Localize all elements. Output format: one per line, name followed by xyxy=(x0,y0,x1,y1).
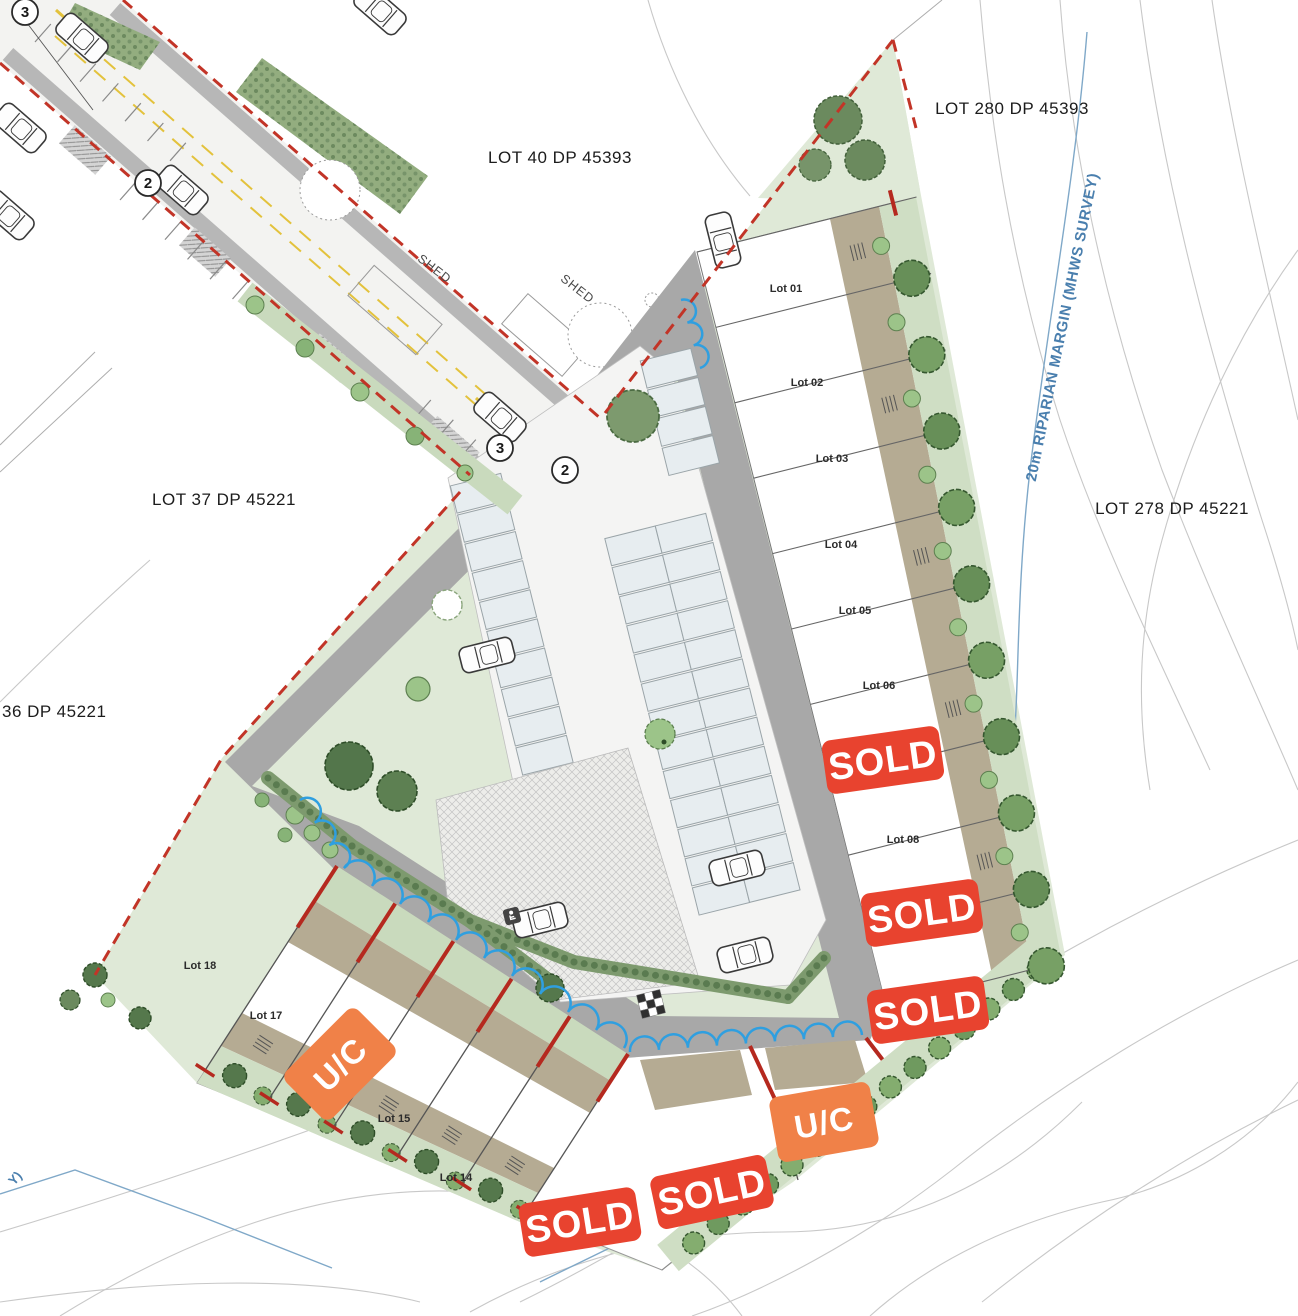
lot-label: Lot 01 xyxy=(770,283,802,295)
parcel-label: LOT 278 DP 45221 xyxy=(1095,499,1249,518)
lot-label: Lot 06 xyxy=(863,680,895,692)
parcel-label: 36 DP 45221 xyxy=(2,702,106,721)
lot-label: Lot 08 xyxy=(887,834,919,846)
parcel-label: LOT 40 DP 45393 xyxy=(488,148,632,167)
lot-label: Lot 05 xyxy=(839,605,871,617)
site-plan-drawing: SOLD SOLD SOLD U/C SOLD SOLD U/C LOT 40 … xyxy=(0,0,1298,1316)
road-marker: 2 xyxy=(135,170,161,196)
svg-text:2: 2 xyxy=(561,462,569,479)
site-plan: SOLD SOLD SOLD U/C SOLD SOLD U/C LOT 40 … xyxy=(0,0,1298,1316)
fan-pad-2 xyxy=(765,1040,868,1090)
road-marker: 2 xyxy=(552,457,578,483)
lot-label: Lot 17 xyxy=(250,1010,282,1022)
parcel-label: LOT 37 DP 45221 xyxy=(152,490,296,509)
lot-label: Lot 04 xyxy=(825,539,858,551)
lot-label: Lot 02 xyxy=(791,377,823,389)
road-marker: 3 xyxy=(12,0,38,25)
parcel-label: LOT 280 DP 45393 xyxy=(935,99,1089,118)
lot-label: Lot 18 xyxy=(184,960,216,972)
svg-text:3: 3 xyxy=(496,440,504,457)
lot-label: Lot 14 xyxy=(440,1172,473,1184)
svg-text:3: 3 xyxy=(21,4,29,21)
road-marker: 3 xyxy=(487,435,513,461)
svg-text:2: 2 xyxy=(144,175,152,192)
lot-label: Lot 15 xyxy=(378,1113,410,1125)
lot-label: Lot 03 xyxy=(816,453,848,465)
